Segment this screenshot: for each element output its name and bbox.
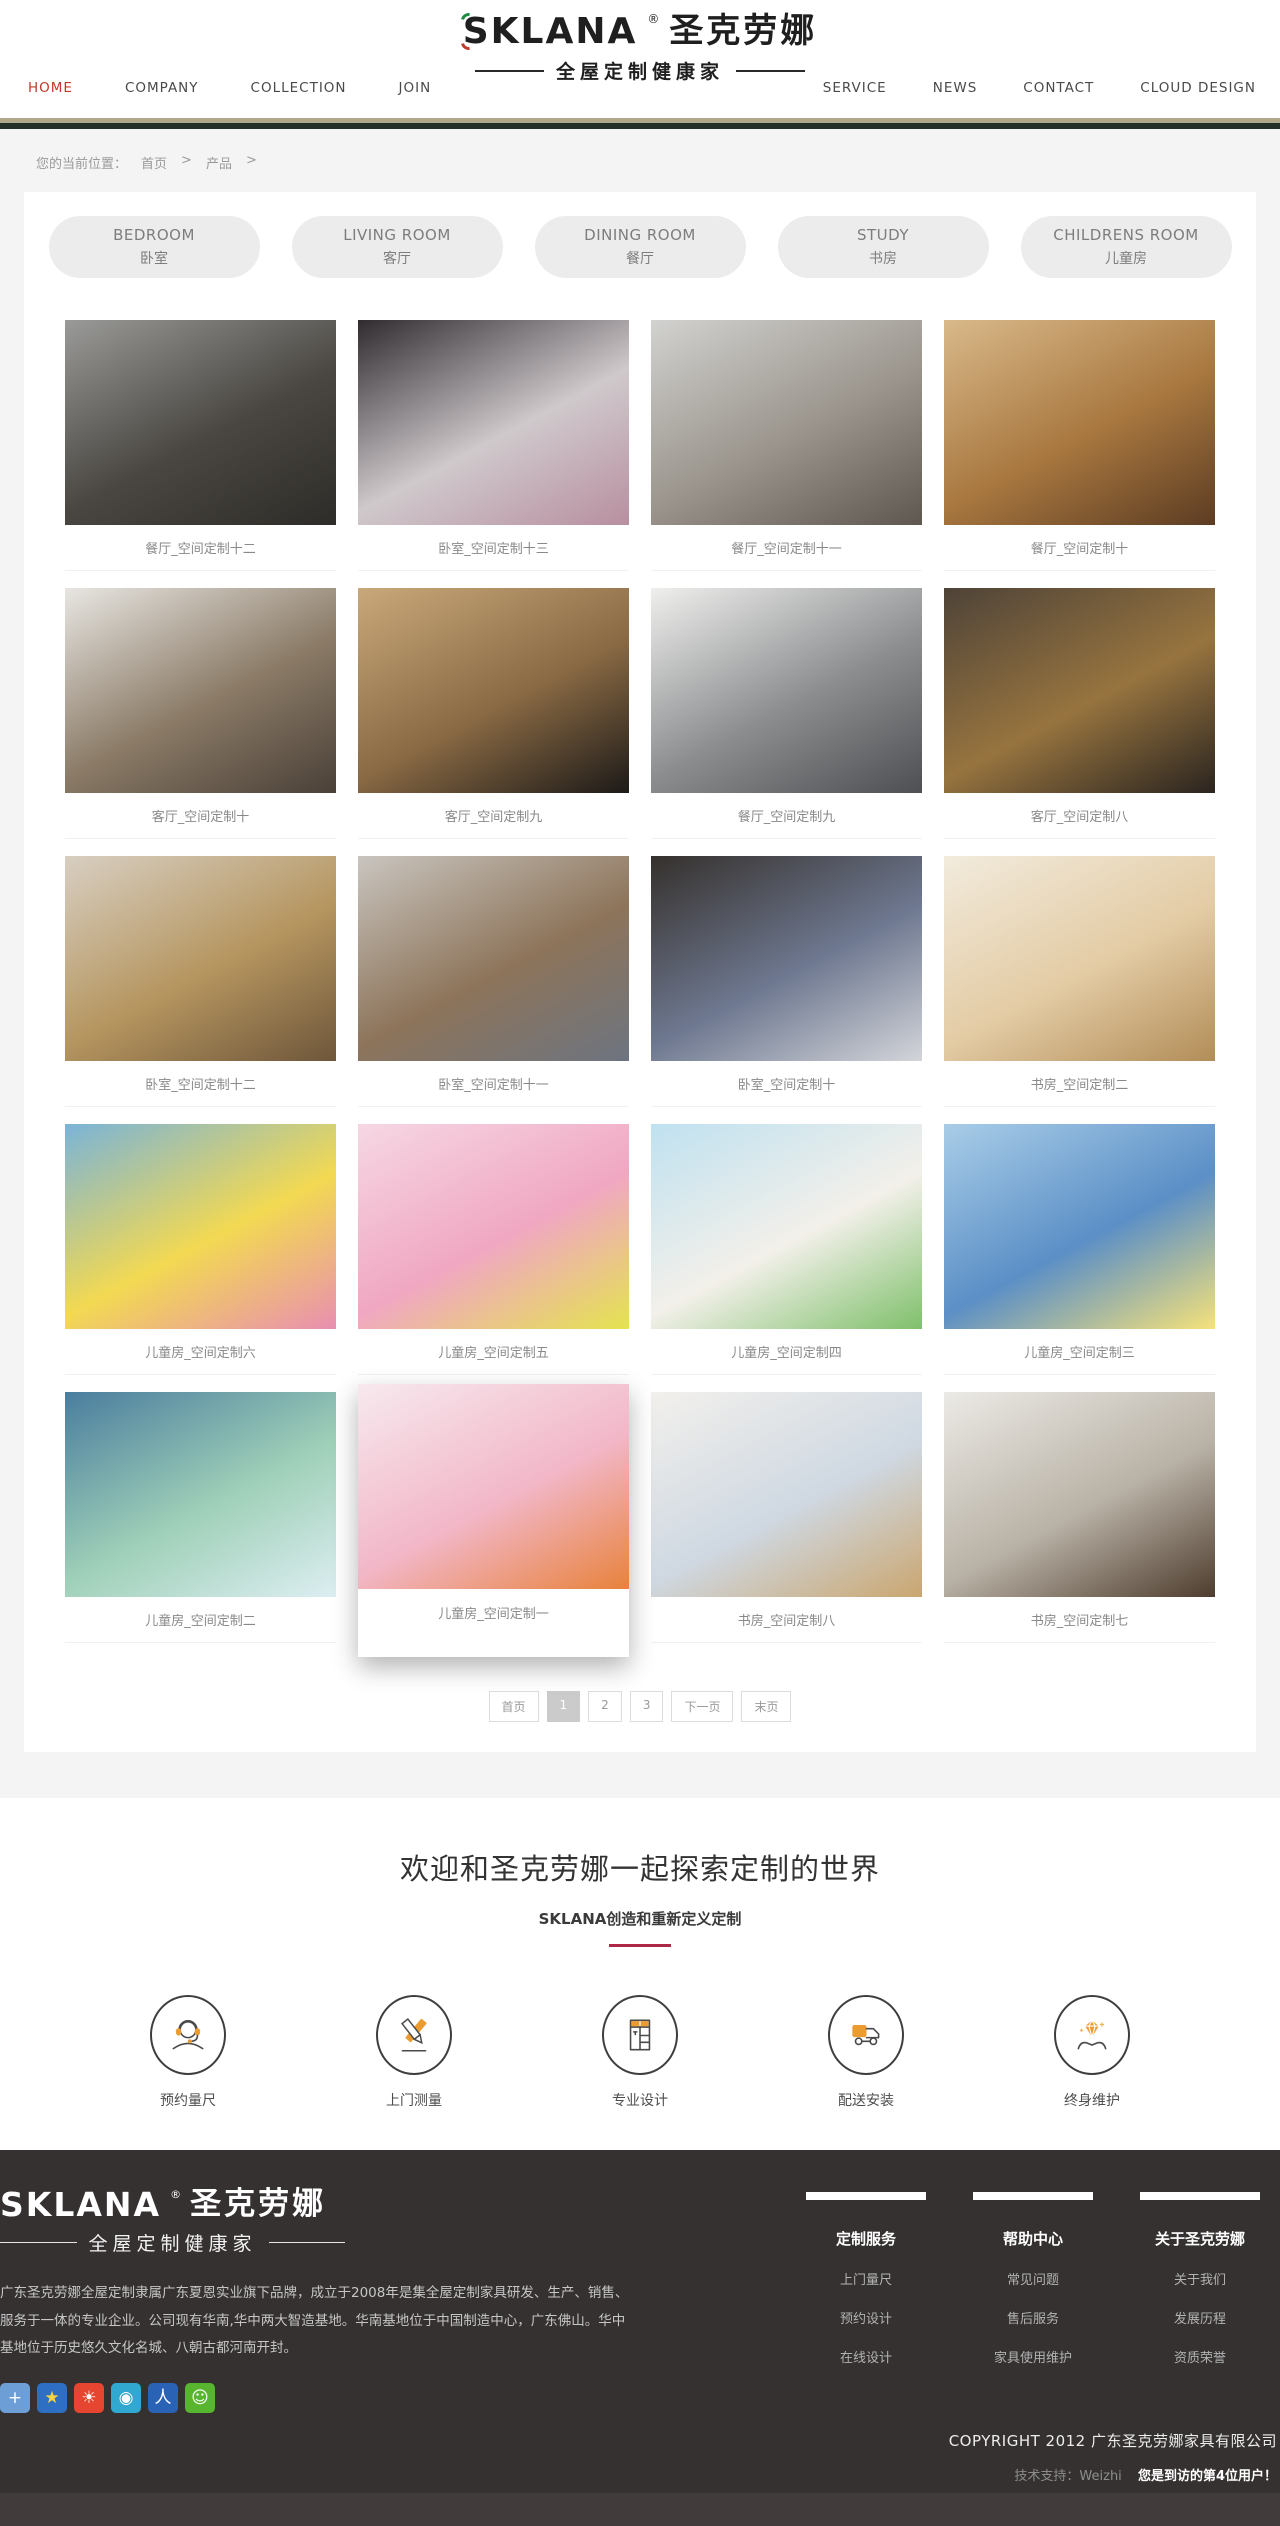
page-button-1[interactable]: 1 [547, 1691, 581, 1722]
main-nav-right: SERVICENEWSCONTACTCLOUD DESIGN [823, 80, 1256, 96]
product-image [358, 1384, 629, 1589]
category-pill-en: DINING ROOM [584, 226, 696, 244]
service-steps: 预约量尺 上门测量 [0, 1995, 1280, 2110]
site-footer: SKLANA ® 圣克劳娜 全屋定制健康家 广东圣克劳娜全屋定制隶属广东夏恩实业… [0, 2150, 1280, 2526]
product-image [651, 1124, 922, 1329]
footer-column-bar [1140, 2192, 1260, 2200]
product-image [65, 320, 336, 525]
product-card[interactable]: 儿童房_空间定制五 [358, 1124, 629, 1375]
breadcrumb-separator: > [181, 153, 192, 172]
product-image [944, 588, 1215, 793]
category-pill-childrens-room[interactable]: CHILDRENS ROOM儿童房 [1021, 216, 1232, 278]
page-button-3[interactable]: 3 [630, 1691, 664, 1722]
wardrobe-icon [602, 1995, 678, 2075]
product-image [944, 1124, 1215, 1329]
qzone-icon[interactable]: ★ [37, 2383, 67, 2413]
headset-icon [150, 1995, 226, 2075]
product-card[interactable]: 书房_空间定制二 [944, 856, 1215, 1107]
nav-item-company[interactable]: COMPANY [125, 80, 199, 96]
product-image [358, 588, 629, 793]
footer-column-heading: 定制服务 [806, 2228, 926, 2249]
service-label: 配送安装 [838, 2090, 894, 2110]
tencent-weibo-icon[interactable]: ◉ [111, 2383, 141, 2413]
product-image [944, 320, 1215, 525]
category-pill-zh: 书房 [869, 248, 897, 268]
footer-column: 关于圣克劳娜关于我们发展历程资质荣誉 [1140, 2192, 1260, 2366]
product-image [358, 1124, 629, 1329]
logo-chinese: 圣克劳娜 [669, 14, 817, 50]
product-title: 儿童房_空间定制六 [65, 1329, 336, 1375]
measure-icon [376, 1995, 452, 2075]
footer-link[interactable]: 资质荣誉 [1140, 2347, 1260, 2366]
company-description: 广东圣克劳娜全屋定制隶属广东夏恩实业旗下品牌，成立于2008年是集全屋定制家具研… [0, 2280, 638, 2363]
product-title: 卧室_空间定制十三 [358, 525, 629, 571]
footer-link[interactable]: 关于我们 [1140, 2269, 1260, 2288]
footer-nav-columns: 定制服务上门量尺预约设计在线设计帮助中心常见问题售后服务家具使用维护关于圣克劳娜… [806, 2192, 1260, 2366]
product-image [65, 588, 336, 793]
product-grid: 餐厅_空间定制十二卧室_空间定制十三餐厅_空间定制十一餐厅_空间定制十客厅_空间… [65, 320, 1215, 1643]
product-title: 餐厅_空间定制十一 [651, 525, 922, 571]
product-image [358, 856, 629, 1061]
tech-support-text: 技术支持：Weizhi [1014, 2469, 1121, 2484]
product-image [651, 856, 922, 1061]
welcome-subtitle: SKLANA创造和重新定义定制 [0, 1908, 1280, 1929]
category-pill-dining-room[interactable]: DINING ROOM餐厅 [535, 216, 746, 278]
footer-link[interactable]: 家具使用维护 [973, 2347, 1093, 2366]
nav-item-service[interactable]: SERVICE [823, 80, 887, 96]
product-image [65, 1124, 336, 1329]
service-label: 预约量尺 [160, 2090, 216, 2110]
footer-bottom-strip [0, 2493, 1280, 2526]
service-home-measuring: 上门测量 [359, 1995, 469, 2110]
diamond-hands-icon [1054, 1995, 1130, 2075]
footer-column: 定制服务上门量尺预约设计在线设计 [806, 2192, 926, 2366]
footer-column: 帮助中心常见问题售后服务家具使用维护 [973, 2192, 1093, 2366]
product-image [651, 1392, 922, 1597]
product-card[interactable]: 儿童房_空间定制一 [358, 1384, 629, 1657]
footer-column-bar [806, 2192, 926, 2200]
main-nav-left: HOMECOMPANYCOLLECTIONJOIN [28, 80, 431, 96]
product-title: 书房_空间定制七 [944, 1597, 1215, 1643]
product-title: 餐厅_空间定制十二 [65, 525, 336, 571]
pagination: 首页123下一页末页 [48, 1691, 1232, 1722]
product-title: 儿童房_空间定制一 [358, 1589, 629, 1635]
footer-brand-block: SKLANA ® 圣克劳娜 全屋定制健康家 广东圣克劳娜全屋定制隶属广东夏恩实业… [0, 2188, 645, 2413]
product-card[interactable]: 书房_空间定制八 [651, 1392, 922, 1643]
product-card[interactable]: 餐厅_空间定制十一 [651, 320, 922, 571]
breadcrumb-current-link[interactable]: 产品 [206, 153, 232, 172]
footer-link[interactable]: 发展历程 [1140, 2308, 1260, 2327]
welcome-section: 欢迎和圣克劳娜一起探索定制的世界 SKLANA创造和重新定义定制 预约量尺 [0, 1798, 1280, 2150]
logo-tagline: 全屋定制健康家 [475, 57, 805, 84]
category-pill-study[interactable]: STUDY书房 [778, 216, 989, 278]
product-title: 儿童房_空间定制二 [65, 1597, 336, 1643]
site-header: SKLANA ® 圣克劳娜 全屋定制健康家 HOMECOMPANYCOLLECT… [0, 0, 1280, 118]
product-card[interactable]: 卧室_空间定制十三 [358, 320, 629, 571]
breadcrumb: 您的当前位置： 首页 > 产品 > [0, 129, 1280, 192]
footer-logo-tagline: 全屋定制健康家 [0, 2229, 345, 2256]
product-card[interactable]: 客厅_空间定制十 [65, 588, 336, 839]
footer-column-heading: 帮助中心 [973, 2228, 1093, 2249]
page-button-2[interactable]: 2 [588, 1691, 622, 1722]
footer-link[interactable]: 售后服务 [973, 2308, 1093, 2327]
product-title: 儿童房_空间定制四 [651, 1329, 922, 1375]
category-pill-bedroom[interactable]: BEDROOM卧室 [49, 216, 260, 278]
product-image [651, 588, 922, 793]
product-card[interactable]: 餐厅_空间定制十 [944, 320, 1215, 571]
product-panel: BEDROOM卧室LIVING ROOM客厅DINING ROOM餐厅STUDY… [24, 192, 1256, 1752]
welcome-title: 欢迎和圣克劳娜一起探索定制的世界 [0, 1846, 1280, 1888]
renren-icon[interactable]: 人 [148, 2383, 178, 2413]
product-image [358, 320, 629, 525]
product-title: 卧室_空间定制十一 [358, 1061, 629, 1107]
breadcrumb-separator: > [246, 153, 257, 172]
nav-item-join[interactable]: JOIN [399, 80, 432, 96]
category-pill-living-room[interactable]: LIVING ROOM客厅 [292, 216, 503, 278]
nav-item-home[interactable]: HOME [28, 80, 73, 96]
page-button-下一页[interactable]: 下一页 [671, 1691, 733, 1722]
category-pill-en: LIVING ROOM [343, 226, 451, 244]
product-title: 餐厅_空间定制九 [651, 793, 922, 839]
product-title: 客厅_空间定制九 [358, 793, 629, 839]
footer-link[interactable]: 在线设计 [806, 2347, 926, 2366]
product-title: 儿童房_空间定制三 [944, 1329, 1215, 1375]
product-card[interactable]: 餐厅_空间定制十二 [65, 320, 336, 571]
service-measure-booking: 预约量尺 [133, 1995, 243, 2110]
category-pill-zh: 客厅 [383, 248, 411, 268]
sina-weibo-icon[interactable]: ☀ [74, 2383, 104, 2413]
logo-wordmark: SKLANA [463, 14, 638, 50]
product-card[interactable]: 书房_空间定制七 [944, 1392, 1215, 1643]
product-card[interactable]: 儿童房_空间定制六 [65, 1124, 336, 1375]
page-button-末页[interactable]: 末页 [741, 1691, 791, 1722]
truck-icon [828, 1995, 904, 2075]
product-image [944, 856, 1215, 1061]
product-card[interactable]: 客厅_空间定制九 [358, 588, 629, 839]
product-image [944, 1392, 1215, 1597]
category-pill-en: STUDY [857, 226, 909, 244]
brand-logo: SKLANA ® 圣克劳娜 全屋定制健康家 [0, 14, 1280, 84]
footer-column-heading: 关于圣克劳娜 [1140, 2228, 1260, 2249]
page-button-首页[interactable]: 首页 [489, 1691, 539, 1722]
copyright-text: COPYRIGHT 2012 广东圣克劳娜家具有限公司 [949, 2430, 1277, 2451]
product-card[interactable]: 儿童房_空间定制二 [65, 1392, 336, 1643]
content-section: BEDROOM卧室LIVING ROOM客厅DINING ROOM餐厅STUDY… [0, 192, 1280, 1798]
product-card[interactable]: 卧室_空间定制十二 [65, 856, 336, 1107]
product-card[interactable]: 卧室_空间定制十 [651, 856, 922, 1107]
footer-link[interactable]: 预约设计 [806, 2308, 926, 2327]
nav-item-collection[interactable]: COLLECTION [251, 80, 347, 96]
footer-column-bar [973, 2192, 1093, 2200]
breadcrumb-prefix: 您的当前位置： [36, 153, 127, 172]
breadcrumb-home-link[interactable]: 首页 [141, 153, 167, 172]
product-image [65, 856, 336, 1061]
product-card[interactable]: 客厅_空间定制八 [944, 588, 1215, 839]
product-card[interactable]: 儿童房_空间定制三 [944, 1124, 1215, 1375]
service-label: 专业设计 [612, 2090, 668, 2110]
product-card[interactable]: 卧室_空间定制十一 [358, 856, 629, 1107]
service-professional-design: 专业设计 [585, 1995, 695, 2110]
category-pill-en: CHILDRENS ROOM [1053, 226, 1198, 244]
service-label: 终身维护 [1064, 2090, 1120, 2110]
product-card[interactable]: 餐厅_空间定制九 [651, 588, 922, 839]
copyright-block: COPYRIGHT 2012 广东圣克劳娜家具有限公司 技术支持：Weizhi … [949, 2430, 1277, 2484]
welcome-accent-line [609, 1944, 671, 1947]
product-title: 书房_空间定制八 [651, 1597, 922, 1643]
nav-item-contact[interactable]: CONTACT [1023, 80, 1094, 96]
service-delivery-install: 配送安装 [811, 1995, 921, 2110]
product-image [65, 1392, 336, 1597]
service-label: 上门测量 [386, 2090, 442, 2110]
product-title: 餐厅_空间定制十 [944, 525, 1215, 571]
product-title: 卧室_空间定制十二 [65, 1061, 336, 1107]
footer-logo: SKLANA ® 圣克劳娜 [0, 2188, 326, 2221]
footer-link[interactable]: 上门量尺 [806, 2269, 926, 2288]
product-image [651, 320, 922, 525]
category-pill-zh: 卧室 [140, 248, 168, 268]
product-title: 客厅_空间定制十 [65, 793, 336, 839]
social-links: +★☀◉人☺ [0, 2383, 645, 2413]
product-title: 儿童房_空间定制五 [358, 1329, 629, 1375]
category-pill-zh: 餐厅 [626, 248, 654, 268]
footer-link[interactable]: 常见问题 [973, 2269, 1093, 2288]
share-plus-icon[interactable]: + [0, 2383, 30, 2413]
nav-item-news[interactable]: NEWS [933, 80, 978, 96]
wechat-icon[interactable]: ☺ [185, 2383, 215, 2413]
product-title: 卧室_空间定制十 [651, 1061, 922, 1107]
nav-item-cloud-design[interactable]: CLOUD DESIGN [1140, 80, 1256, 96]
category-pill-en: BEDROOM [113, 226, 195, 244]
category-filter: BEDROOM卧室LIVING ROOM客厅DINING ROOM餐厅STUDY… [48, 216, 1232, 278]
registered-mark: ® [647, 12, 659, 26]
product-title: 书房_空间定制二 [944, 1061, 1215, 1107]
visitor-counter-text: 您是到访的第4位用户！ [1138, 2469, 1277, 2484]
category-pill-zh: 儿童房 [1105, 248, 1147, 268]
service-lifetime-maintenance: 终身维护 [1037, 1995, 1147, 2110]
product-card[interactable]: 儿童房_空间定制四 [651, 1124, 922, 1375]
product-title: 客厅_空间定制八 [944, 793, 1215, 839]
